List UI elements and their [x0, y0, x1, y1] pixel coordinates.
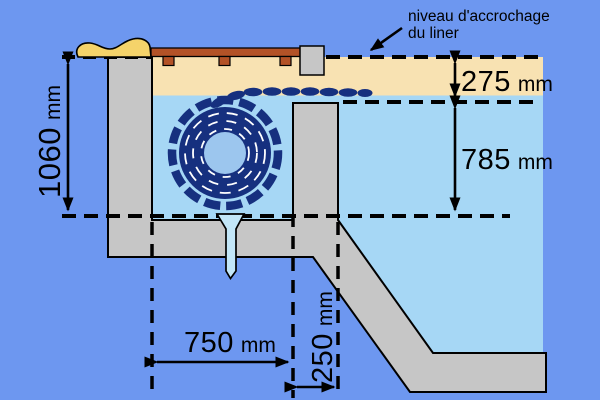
cover-slat	[320, 88, 339, 97]
pool-cover-cross-section-diagram: 1060mm 275mm 785mm 750mm 250mm niveau d'…	[0, 0, 600, 400]
label-wall-offset-unit: mm	[314, 291, 337, 326]
cover-slat	[282, 87, 301, 96]
label-overall-height-value: 1060	[32, 127, 67, 198]
cover-slat	[339, 88, 358, 97]
label-liner-to-water-value: 275	[461, 66, 511, 98]
annotation-line2: du liner	[408, 25, 459, 42]
diagram-canvas: 1060mm 275mm 785mm 750mm 250mm niveau d'…	[0, 0, 600, 400]
cover-slat	[263, 87, 282, 96]
cover-slat	[358, 89, 373, 97]
cover-slat	[301, 87, 320, 96]
label-water-to-floor-value: 785	[461, 144, 511, 176]
guide-block	[300, 46, 324, 75]
label-water-to-floor-unit: mm	[518, 151, 553, 174]
cover-slat	[244, 88, 263, 97]
label-wall-offset-value: 250	[307, 333, 339, 383]
label-overall-height-unit: mm	[42, 85, 65, 120]
annotation-line1: niveau d'accrochage	[408, 8, 550, 25]
label-pit-width-value: 750	[184, 327, 234, 359]
beam-bracket	[219, 57, 230, 66]
support-beam	[151, 48, 302, 57]
roller-axle	[204, 132, 246, 174]
beam-bracket	[280, 57, 291, 66]
label-pit-width-unit: mm	[241, 334, 276, 357]
beam-bracket	[163, 57, 174, 66]
label-liner-to-water-unit: mm	[518, 73, 553, 96]
